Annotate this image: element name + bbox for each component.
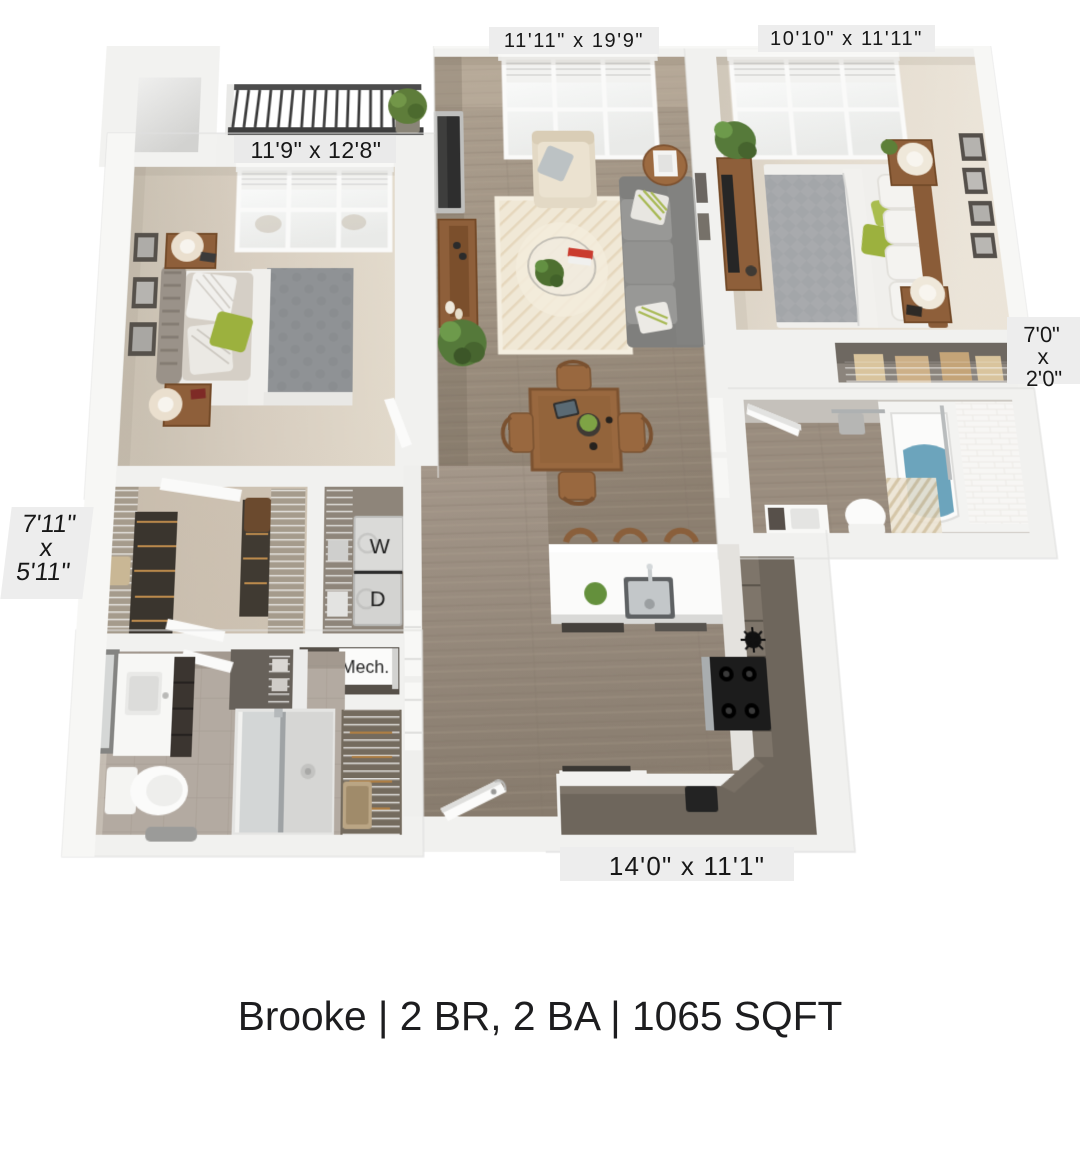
- svg-text:W: W: [370, 535, 390, 559]
- svg-text:D: D: [370, 587, 386, 611]
- svg-text:Mech.: Mech.: [341, 657, 389, 677]
